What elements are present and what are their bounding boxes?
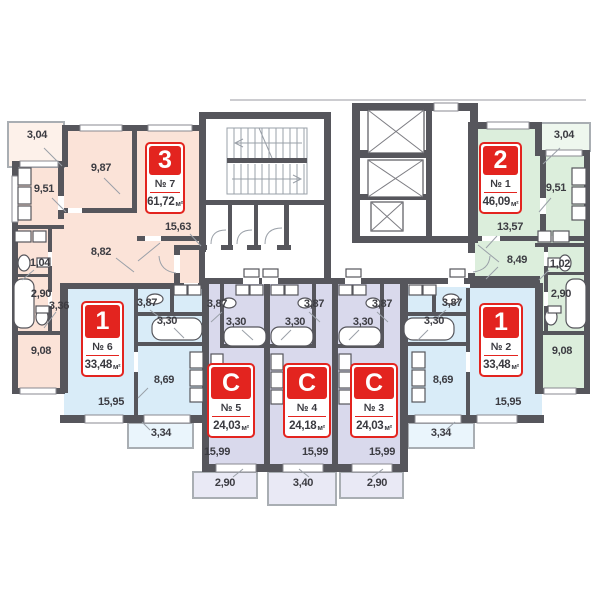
dim-apt5-balcony: 2,90	[207, 477, 243, 489]
unit-number: № 2	[484, 339, 518, 356]
unit-area: 46,09м²	[483, 193, 518, 210]
dim-apt6-bath: 3,30	[149, 315, 185, 327]
unit-card-apt3[interactable]: С № 3 24,03м²	[350, 363, 398, 438]
dim-apt3-hall: 3,87	[364, 298, 400, 310]
unit-type-badge: 3	[149, 146, 181, 175]
dim-apt7-hall: 8,82	[83, 246, 119, 258]
unit-number: № 3	[355, 400, 393, 417]
dim-apt4-living: 15,99	[297, 446, 333, 458]
unit-type-badge: 1	[483, 307, 519, 338]
unit-area-unit: м²	[384, 423, 391, 432]
dim-apt7-room2: 9,08	[23, 345, 59, 357]
dim-apt6-living: 15,95	[93, 396, 129, 408]
dim-apt7-balcony: 3,04	[19, 129, 55, 141]
dim-apt7-wc: 1,04	[22, 257, 58, 269]
unit-number: № 7	[150, 176, 180, 193]
unit-number: № 6	[86, 339, 119, 356]
dim-apt7-bedroom: 9,87	[83, 162, 119, 174]
unit-type-badge: С	[354, 367, 394, 399]
unit-area: 33,48м²	[85, 356, 120, 373]
floorplan: 3,04 9,51 9,87 15,63 8,82 1,04 2,90 3,36…	[0, 0, 600, 600]
unit-area-value: 24,18	[289, 420, 316, 432]
unit-area-unit: м²	[511, 362, 518, 371]
unit-area-unit: м²	[317, 423, 324, 432]
unit-area: 33,48м²	[483, 356, 519, 373]
apt1-floor-column[interactable]	[539, 230, 586, 392]
dim-apt5-living: 15,99	[199, 446, 235, 458]
dim-apt1-kitchen: 9,51	[538, 182, 574, 194]
unit-card-apt5[interactable]: С № 5 24,03м²	[207, 363, 255, 438]
unit-area-value: 61,72	[147, 196, 174, 208]
staircase	[227, 128, 307, 194]
dim-apt7-living: 15,63	[160, 221, 196, 233]
dim-apt1-living: 13,57	[492, 221, 528, 233]
unit-area-unit: м²	[511, 199, 518, 208]
unit-card-apt7[interactable]: 3 № 7 61,72м²	[145, 142, 185, 214]
unit-type-badge: С	[287, 367, 327, 399]
unit-type-badge: С	[211, 367, 251, 399]
dim-apt1-wc: 1,02	[542, 258, 578, 270]
dim-apt7-corridor: 3,36	[41, 300, 77, 312]
dim-apt1-bath: 2,90	[543, 288, 579, 300]
unit-area-value: 33,48	[483, 359, 510, 371]
dim-apt1-hall: 8,49	[499, 254, 535, 266]
unit-area-value: 33,48	[85, 359, 112, 371]
dim-apt5-hall: 3,87	[199, 298, 235, 310]
unit-type-badge: 1	[85, 305, 120, 338]
doors	[159, 228, 490, 277]
unit-area-value: 24,03	[356, 420, 383, 432]
unit-area: 24,03м²	[211, 417, 251, 434]
unit-number: № 5	[212, 400, 250, 417]
unit-area-unit: м²	[241, 423, 248, 432]
dim-apt2-balcony: 3,34	[423, 427, 459, 439]
unit-area: 24,18м²	[287, 417, 327, 434]
dim-apt5-bath: 3,30	[218, 316, 254, 328]
unit-area-unit: м²	[175, 199, 182, 208]
elevators	[368, 110, 424, 231]
unit-area-unit: м²	[113, 362, 120, 371]
dim-apt2-kitchen: 8,69	[425, 374, 461, 386]
unit-area-value: 24,03	[213, 420, 240, 432]
unit-card-apt4[interactable]: С № 4 24,18м²	[283, 363, 331, 438]
dim-apt2-hall: 3,87	[434, 297, 470, 309]
dim-apt1-balcony: 3,04	[546, 129, 582, 141]
unit-card-apt1[interactable]: 2 № 1 46,09м²	[479, 142, 522, 214]
unit-number: № 1	[484, 176, 517, 193]
unit-card-apt6[interactable]: 1 № 6 33,48м²	[81, 301, 124, 377]
unit-area-value: 46,09	[483, 196, 510, 208]
dim-apt7-kitchen: 9,51	[26, 183, 62, 195]
unit-type-badge: 2	[483, 146, 518, 175]
dim-apt6-balcony: 3,34	[143, 427, 179, 439]
dim-apt3-balcony: 2,90	[359, 477, 395, 489]
unit-area: 24,03м²	[354, 417, 394, 434]
dim-apt7-bath: 2,90	[23, 288, 59, 300]
dim-apt4-bath: 3,30	[277, 316, 313, 328]
dim-apt4-balcony: 3,40	[285, 477, 321, 489]
dim-apt6-hall: 3,87	[129, 297, 165, 309]
unit-card-apt2[interactable]: 1 № 2 33,48м²	[479, 303, 523, 377]
unit-number: № 4	[288, 400, 326, 417]
dim-apt3-living: 15,99	[364, 446, 400, 458]
dim-apt6-kitchen: 8,69	[146, 374, 182, 386]
dim-apt4-hall: 3,87	[296, 298, 332, 310]
dim-apt3-bath: 3,30	[345, 316, 381, 328]
dim-apt2-living: 15,95	[490, 396, 526, 408]
unit-area: 61,72м²	[149, 193, 181, 210]
dim-apt2-bath: 3,30	[416, 315, 452, 327]
dim-apt1-room2: 9,08	[544, 345, 580, 357]
